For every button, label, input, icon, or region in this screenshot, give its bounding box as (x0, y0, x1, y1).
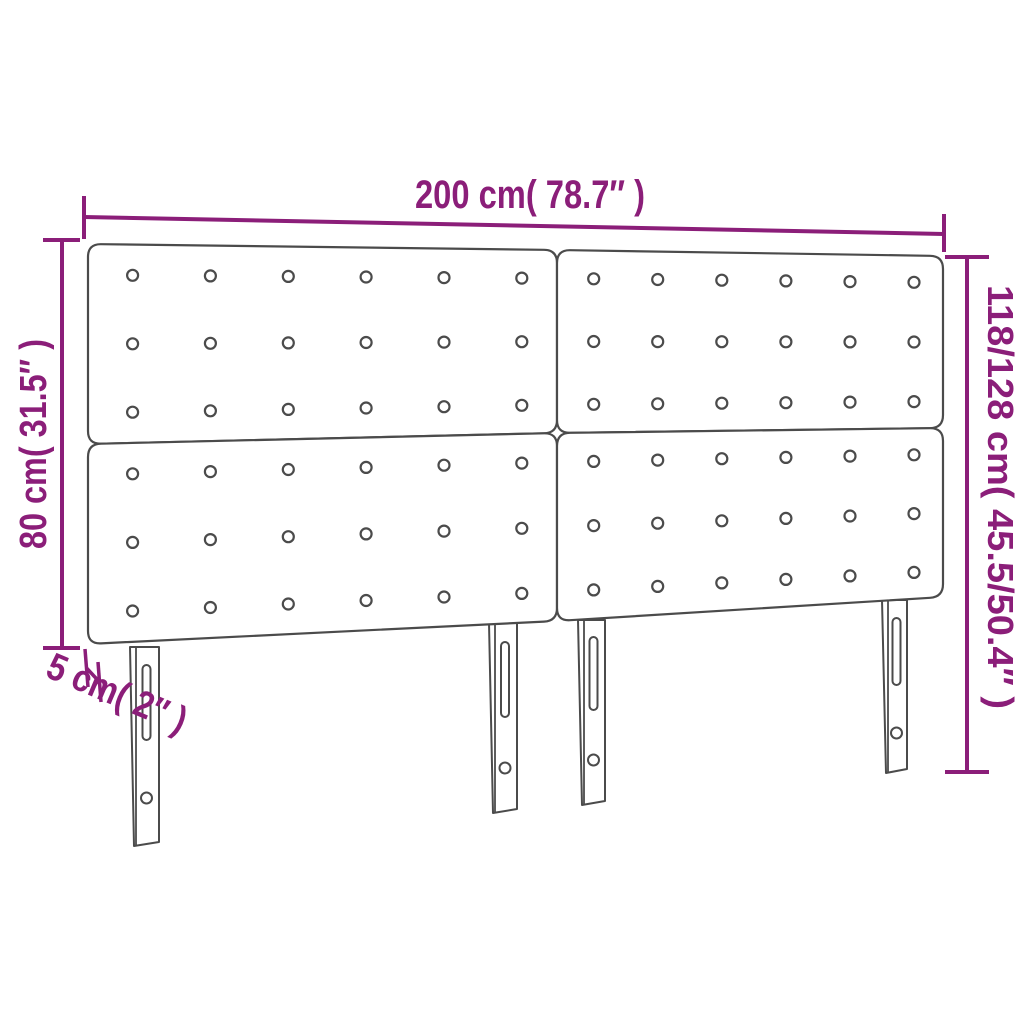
headboard-dimension-diagram-page: 200 cm( 78.7″ ) 80 cm( 31.5″ ) 118/128 c… (0, 0, 1024, 1024)
headboard-panel (557, 250, 943, 433)
width-dimension: 200 cm( 78.7″ ) (84, 173, 944, 252)
headboard-panel (88, 244, 557, 444)
panel-height-dimension: 80 cm( 31.5″ ) (13, 240, 80, 648)
leg-body (882, 600, 907, 773)
width-dimension-line (84, 217, 944, 234)
leg-body (130, 647, 159, 846)
total-height-dimension: 118/128 cm( 45.5/50.4″ ) (945, 257, 1021, 772)
headboard-panel (88, 433, 557, 643)
panel-height-dimension-label: 80 cm( 31.5″ ) (13, 339, 55, 549)
thickness-dimension: 5 cm( 2″ ) (40, 646, 193, 742)
headboard-dimension-diagram: 200 cm( 78.7″ ) 80 cm( 31.5″ ) 118/128 c… (0, 0, 1024, 1024)
width-dimension-label: 200 cm( 78.7″ ) (415, 173, 645, 217)
headboard-leg (578, 620, 605, 805)
thickness-dimension-label: 5 cm( 2″ ) (40, 646, 193, 742)
headboard-panel (557, 428, 943, 620)
headboard-leg (130, 647, 159, 846)
panels-layer (88, 244, 943, 643)
leg-body (578, 620, 605, 805)
headboard-leg (882, 600, 907, 773)
total-height-dimension-label: 118/128 cm( 45.5/50.4″ ) (980, 285, 1021, 709)
leg-body (489, 623, 517, 813)
headboard-leg (489, 623, 517, 813)
